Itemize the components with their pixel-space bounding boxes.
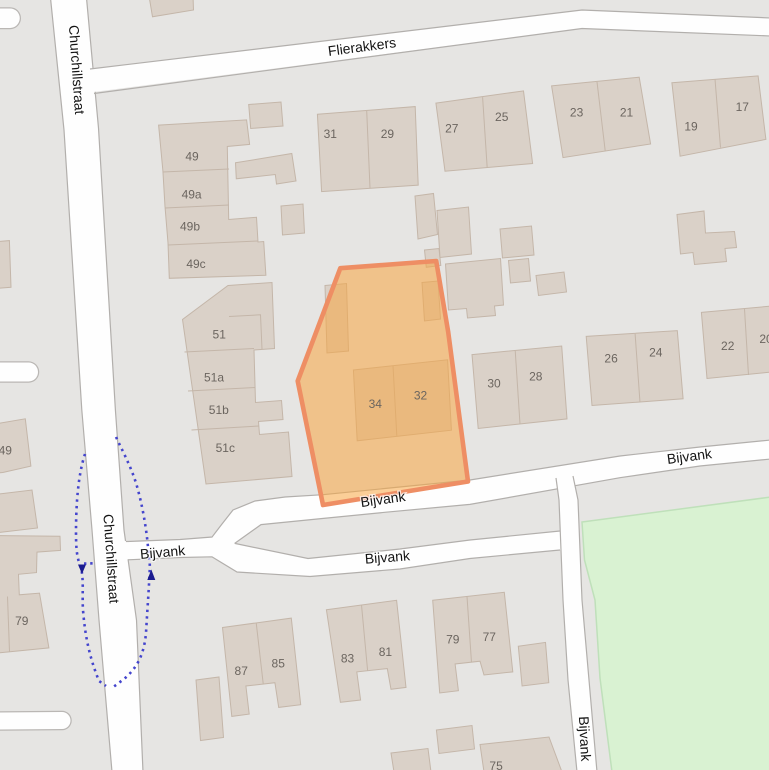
svg-text:27: 27 <box>445 121 459 135</box>
svg-text:22: 22 <box>721 339 735 353</box>
svg-text:75: 75 <box>489 759 503 770</box>
svg-text:77: 77 <box>483 630 497 644</box>
svg-text:Bijvank: Bijvank <box>576 716 594 763</box>
svg-text:87: 87 <box>235 664 249 678</box>
svg-text:21: 21 <box>620 106 634 120</box>
svg-text:79: 79 <box>15 614 29 628</box>
svg-text:32: 32 <box>414 389 428 403</box>
svg-text:20: 20 <box>759 332 769 346</box>
svg-text:26: 26 <box>604 351 618 365</box>
svg-text:19: 19 <box>684 120 698 134</box>
svg-text:29: 29 <box>381 127 395 141</box>
svg-text:49: 49 <box>185 149 199 163</box>
svg-text:51: 51 <box>213 327 227 341</box>
svg-text:49a: 49a <box>182 187 202 201</box>
svg-text:51c: 51c <box>216 441 235 455</box>
svg-text:51a: 51a <box>204 370 224 384</box>
svg-text:23: 23 <box>570 106 584 120</box>
svg-text:83: 83 <box>341 652 355 666</box>
svg-text:49: 49 <box>0 444 12 458</box>
svg-text:25: 25 <box>495 110 509 124</box>
svg-text:85: 85 <box>272 656 286 670</box>
svg-text:28: 28 <box>529 370 543 384</box>
svg-text:24: 24 <box>649 346 663 360</box>
svg-text:30: 30 <box>487 377 501 391</box>
svg-text:17: 17 <box>736 100 750 114</box>
svg-text:79: 79 <box>446 633 460 647</box>
svg-text:49c: 49c <box>186 257 205 271</box>
svg-text:81: 81 <box>379 645 393 659</box>
svg-text:31: 31 <box>324 127 338 141</box>
svg-text:51b: 51b <box>209 403 229 417</box>
svg-text:34: 34 <box>369 397 383 411</box>
svg-text:49b: 49b <box>180 219 200 233</box>
